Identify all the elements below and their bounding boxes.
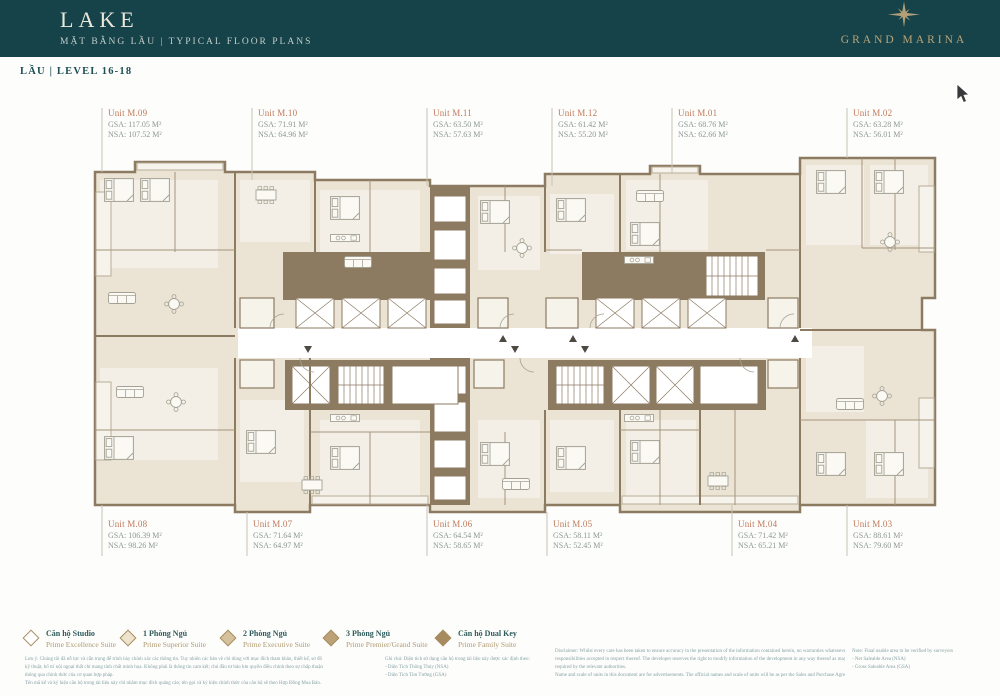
vietnamese-disclaimer: Lưu ý: Chúng tôi đã nỗ lực và cẩn trọng …: [25, 656, 373, 688]
header-band: LAKE MẶT BẰNG LẦU | TYPICAL FLOOR PLANS …: [0, 0, 1000, 57]
unit-label-m10: Unit M.10 GSA: 71.91 M² NSA: 64.96 M²: [258, 108, 378, 140]
floor-plan-page: LAKE MẶT BẰNG LẦU | TYPICAL FLOOR PLANS …: [0, 0, 1000, 696]
unit-label-m04: Unit M.04 GSA: 71.42 M² NSA: 65.21 M²: [738, 519, 858, 551]
unit-label-m07: Unit M.07 GSA: 71.64 M² NSA: 64.97 M²: [253, 519, 373, 551]
compass-star-icon: [829, 1, 979, 28]
two-bedroom-diamond-icon: [220, 630, 237, 647]
one-bedroom-diamond-icon: [120, 630, 137, 647]
english-disclaimer: Disclaimer: Whilst every care has been t…: [555, 648, 845, 680]
unit-label-m02: Unit M.02 GSA: 63.28 M² NSA: 56.01 M²: [853, 108, 973, 140]
unit-label-m01: Unit M.01 GSA: 68.76 M² NSA: 62.66 M²: [678, 108, 798, 140]
brand-block: GRAND MARINA: [824, 1, 984, 46]
page-title: LAKE: [60, 7, 139, 33]
level-label: LẦU | LEVEL 16-18: [20, 66, 132, 77]
legend-item-3br: 3 Phòng Ngủ Prime Premier/Grand Suite: [325, 629, 428, 650]
brand-name: GRAND MARINA: [824, 34, 984, 46]
unit-label-m05: Unit M.05 GSA: 58.11 M² NSA: 52.45 M²: [553, 519, 673, 551]
three-bedroom-diamond-icon: [323, 630, 340, 647]
legend-item-2br: 2 Phòng Ngủ Prime Executive Suite: [222, 629, 310, 650]
legend-item-1br: 1 Phòng Ngủ Prime Superior Suite: [122, 629, 206, 650]
unit-label-m08: Unit M.08 GSA: 106.39 M² NSA: 98.26 M²: [108, 519, 228, 551]
corridor: [238, 328, 812, 358]
unit-label-m11: Unit M.11 GSA: 63.50 M² NSA: 57.63 M²: [433, 108, 553, 140]
legend-item-studio: Căn hộ Studio Prime Excellence Suite: [25, 629, 116, 650]
unit-label-m09: Unit M.09 GSA: 117.05 M² NSA: 107.52 M²: [108, 108, 228, 140]
unit-label-m03: Unit M.03 GSA: 88.61 M² NSA: 79.60 M²: [853, 519, 973, 551]
studio-diamond-icon: [23, 630, 40, 647]
area-note-en: Note: Final usable area to be verified b…: [852, 648, 982, 672]
page-subtitle: MẶT BẰNG LẦU | TYPICAL FLOOR PLANS: [60, 37, 312, 47]
dual-key-diamond-icon: [435, 630, 452, 647]
unit-label-m06: Unit M.06 GSA: 64.54 M² NSA: 58.65 M²: [433, 519, 553, 551]
legend-item-dualkey: Căn hộ Dual Key Prime Family Suite: [437, 629, 517, 650]
unit-label-m12: Unit M.12 GSA: 61.42 M² NSA: 55.20 M²: [558, 108, 678, 140]
cursor-icon: [957, 84, 969, 103]
area-note-vi: Ghi chú: Diện tích sử dụng căn hộ trong …: [385, 656, 535, 680]
floor-plan-drawing: [0, 0, 1000, 696]
